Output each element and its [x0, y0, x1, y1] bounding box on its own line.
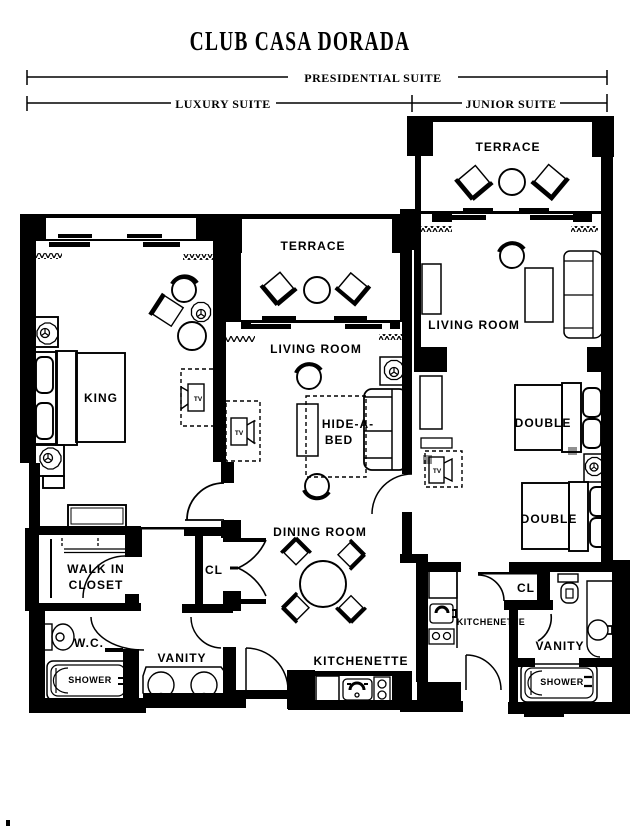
- svg-text:TV: TV: [433, 468, 442, 475]
- svg-text:DOUBLE: DOUBLE: [521, 512, 578, 526]
- svg-text:DOUBLE: DOUBLE: [515, 416, 572, 430]
- svg-text:WALK IN: WALK IN: [67, 562, 125, 576]
- svg-text:CLOSET: CLOSET: [69, 578, 124, 592]
- svg-text:TV: TV: [235, 430, 244, 437]
- svg-text:W.C.: W.C.: [74, 636, 104, 650]
- svg-text:KITCHENETTE: KITCHENETTE: [457, 617, 526, 627]
- svg-text:DINING ROOM: DINING ROOM: [273, 525, 367, 539]
- svg-text:CL: CL: [517, 581, 535, 595]
- svg-text:TV: TV: [194, 396, 203, 403]
- svg-text:TERRACE: TERRACE: [475, 140, 540, 154]
- svg-text:CL: CL: [205, 563, 223, 577]
- svg-text:VANITY: VANITY: [535, 639, 584, 653]
- svg-text:LIVING ROOM: LIVING ROOM: [428, 318, 520, 332]
- svg-text:VANITY: VANITY: [157, 651, 206, 665]
- svg-text:KING: KING: [84, 391, 118, 405]
- svg-text:HIDE-A-: HIDE-A-: [322, 417, 374, 431]
- svg-text:JUNIOR SUITE: JUNIOR SUITE: [465, 97, 556, 111]
- svg-text:LIVING ROOM: LIVING ROOM: [270, 342, 362, 356]
- svg-text:SHOWER: SHOWER: [68, 675, 112, 685]
- svg-text:KITCHENETTE: KITCHENETTE: [314, 654, 409, 668]
- svg-text:BED: BED: [325, 433, 353, 447]
- svg-text:SHOWER: SHOWER: [540, 677, 584, 687]
- svg-text:PRESIDENTIAL SUITE: PRESIDENTIAL SUITE: [304, 71, 441, 85]
- svg-text:TERRACE: TERRACE: [280, 239, 345, 253]
- svg-text:CLUB CASA DORADA: CLUB CASA DORADA: [190, 27, 411, 57]
- svg-text:LUXURY SUITE: LUXURY SUITE: [175, 97, 270, 111]
